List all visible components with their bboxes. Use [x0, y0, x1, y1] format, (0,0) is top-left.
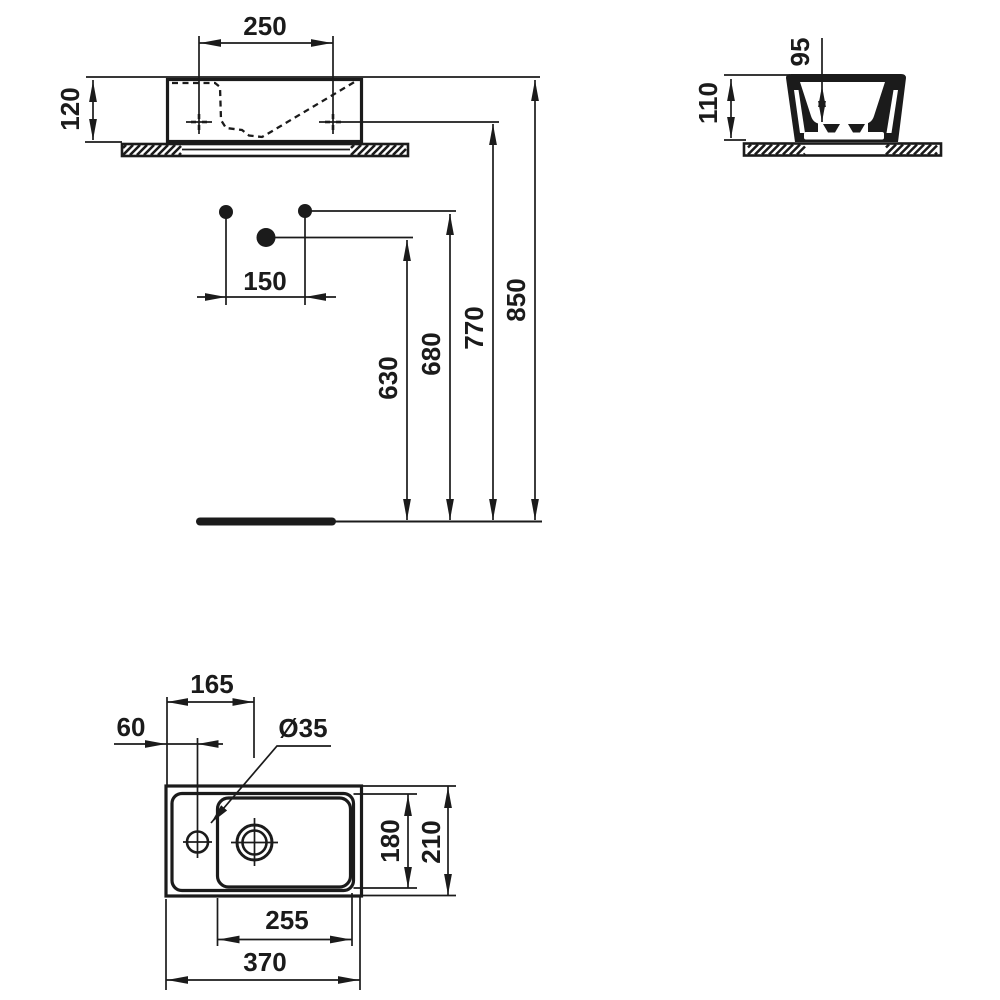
dim-210: 210: [416, 786, 452, 896]
technical-drawing-canvas: 250 120 150 630 680: [0, 0, 1000, 1000]
plan-view: 165 60 Ø35 180 210: [114, 669, 456, 990]
hatch-left: [748, 145, 805, 155]
dim-180-label: 180: [375, 819, 405, 862]
washbasin-dimension-drawing: 250 120 150 630 680: [0, 0, 1000, 1000]
waste-point: [257, 228, 276, 247]
dim-250-label: 250: [243, 11, 286, 41]
dim-850-label: 850: [501, 278, 531, 321]
dim-35-label: Ø35: [278, 713, 327, 743]
fixing-hole-marker-right: [325, 36, 341, 134]
dim-255: 255: [218, 893, 353, 946]
shelf-section-front: [122, 144, 408, 156]
dim-770-label: 770: [459, 306, 489, 349]
fixing-hole-marker-left: [186, 36, 212, 134]
side-section-view: 110 95: [693, 38, 941, 156]
dim-370: 370: [166, 897, 360, 990]
front-elevation-view: 250 120 150 630 680: [55, 11, 542, 522]
dim-60: 60: [114, 712, 223, 748]
dim-630-label: 630: [373, 356, 403, 399]
supply-point-right: [298, 204, 312, 218]
dim-35-leader: Ø35: [211, 713, 331, 823]
dim-150: 150: [197, 266, 336, 301]
dim-370-label: 370: [243, 947, 286, 977]
dim-110: 110: [693, 79, 735, 138]
hatch-right: [351, 145, 406, 155]
dim-210-label: 210: [416, 820, 446, 863]
dim-850: 850: [501, 80, 539, 520]
tap-hole: [183, 738, 212, 858]
dim-680-label: 680: [416, 332, 446, 375]
dim-250: 250: [199, 11, 333, 47]
dim-770: 770: [459, 124, 497, 520]
dim-110-label: 110: [693, 82, 723, 124]
dim-165-label: 165: [190, 669, 233, 699]
dim-60-label: 60: [117, 712, 146, 742]
waste-outlet: [231, 697, 278, 866]
hatch-right: [886, 145, 937, 155]
dim-680: 680: [416, 214, 454, 520]
shelf-section-side: [744, 144, 941, 156]
dim-180: 180: [375, 794, 412, 888]
dim-255-label: 255: [265, 905, 308, 935]
basin-side-section: [786, 74, 906, 142]
dim-120-label: 120: [55, 87, 85, 130]
dim-630: 630: [373, 240, 411, 520]
hatch-left: [123, 145, 181, 155]
dim-95-label: 95: [785, 38, 815, 67]
dim-120: 120: [55, 80, 122, 142]
supply-point-left: [219, 205, 233, 219]
dim-150-label: 150: [243, 266, 286, 296]
dim-165: 165: [167, 669, 254, 786]
